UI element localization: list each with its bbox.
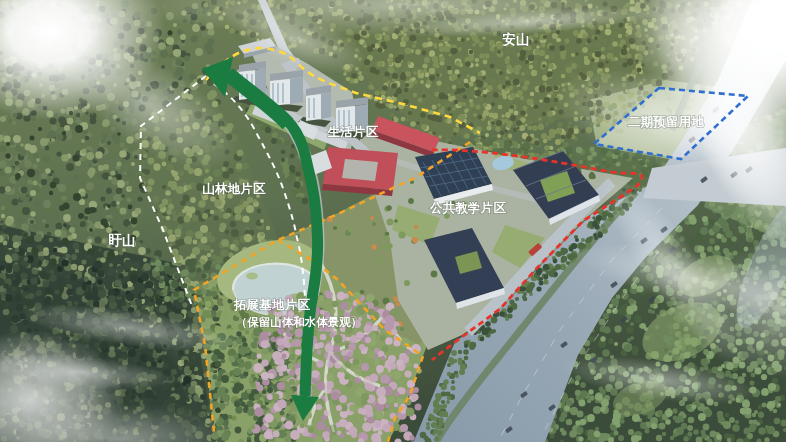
svg-text:生活片区: 生活片区 [327,125,379,139]
svg-text:山林地片区: 山林地片区 [202,182,266,196]
svg-text:安山: 安山 [502,32,529,47]
svg-text:盱山: 盱山 [108,233,135,248]
svg-text:二期预留用地: 二期预留用地 [628,115,705,129]
svg-text:公共教学片区: 公共教学片区 [429,201,507,215]
svg-text:（保留山体和水体景观）: （保留山体和水体景观） [236,315,363,329]
svg-text:拓展基地片区: 拓展基地片区 [233,298,311,312]
